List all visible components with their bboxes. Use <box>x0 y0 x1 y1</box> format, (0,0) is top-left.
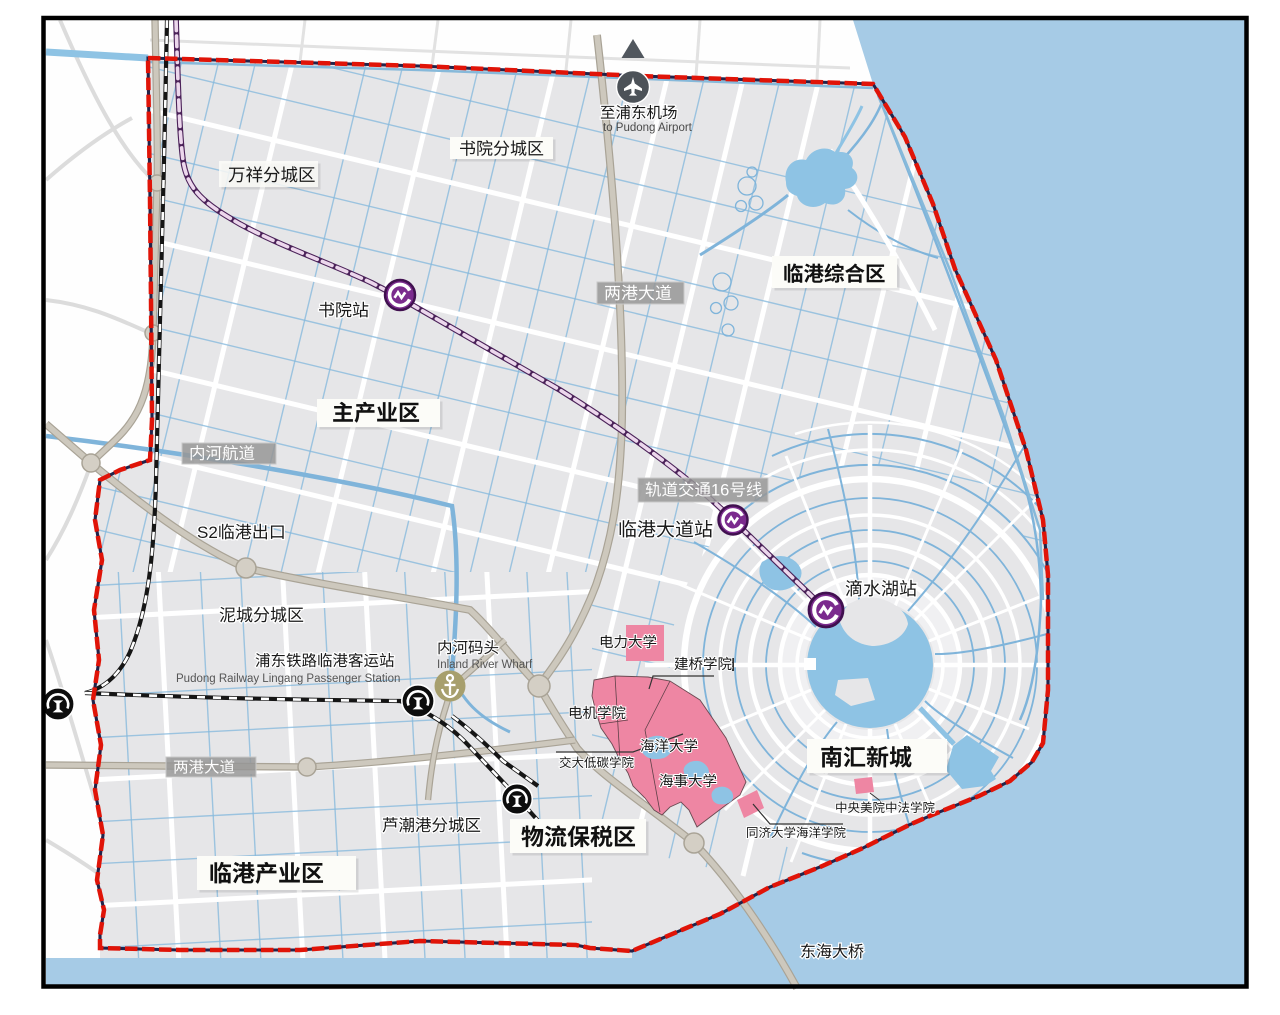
svg-text:Inland River Wharf: Inland River Wharf <box>437 659 533 671</box>
svg-text:Pudong Railway Lingang Passeng: Pudong Railway Lingang Passenger Station <box>176 673 400 685</box>
svg-text:16: 16 <box>711 482 729 500</box>
svg-text:S2: S2 <box>197 523 218 542</box>
svg-text:to Pudong Airport: to Pudong Airport <box>603 122 693 134</box>
